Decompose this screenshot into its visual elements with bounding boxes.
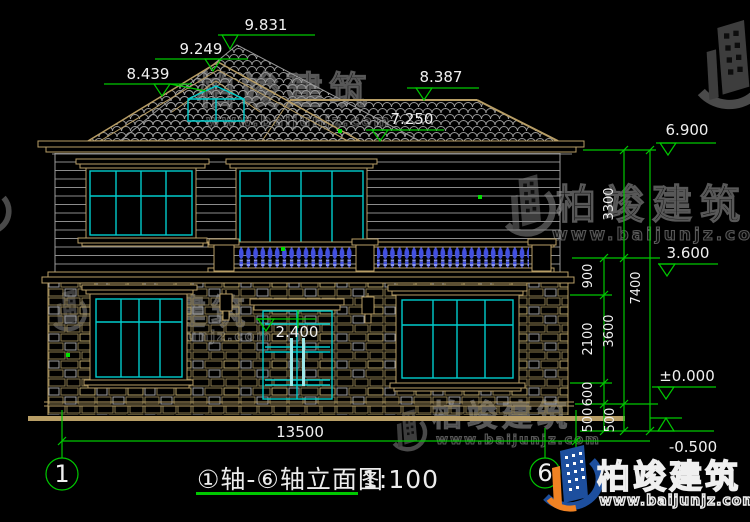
brand-name: 柏竣建筑 [597, 457, 741, 496]
drawing-scale: 1:100 [362, 465, 439, 494]
ground-line [28, 416, 625, 421]
dim-500: 500 [603, 408, 618, 433]
elevation-value: 9.249 [180, 40, 223, 58]
watermark-text: 柏竣建筑 [556, 182, 748, 228]
watermark-url: www.baijunjz.com [552, 225, 750, 245]
axis-number: 6 [537, 459, 552, 487]
balcony-railing [208, 239, 556, 273]
axis-number: 1 [54, 460, 69, 488]
elevation-value: ±0.000 [659, 367, 715, 385]
cad-elevation-sheet: 柏竣建筑 www.baijunjz.com 柏竣建筑 www.baijunjz.… [0, 0, 750, 522]
dim-3300: 3300 [602, 187, 617, 220]
window-2f-left [76, 159, 209, 246]
floor-belt-course [42, 272, 574, 283]
elevation-value: 9.831 [245, 16, 288, 34]
logo-building-blue [560, 445, 588, 503]
door-handle [290, 338, 293, 386]
eave-fascia [38, 141, 584, 154]
dim-600: 600 [581, 382, 596, 407]
window-2f-middle [226, 159, 377, 246]
dim-7400: 7400 [629, 271, 644, 304]
first-floor [44, 283, 574, 415]
window-1f-right [388, 285, 527, 391]
dim-3600: 3600 [602, 314, 617, 347]
elevation-value: 8.387 [420, 68, 463, 86]
elevation-value: -0.500 [669, 438, 717, 456]
title-underline [196, 492, 358, 495]
railing-post [209, 239, 239, 271]
elevation-value: 6.900 [666, 121, 709, 139]
dim-500: 500 [581, 408, 596, 433]
dim-2100: 2100 [581, 322, 596, 355]
dim-900: 900 [581, 264, 596, 289]
elevation-value: 2.400 [276, 323, 319, 341]
elevation-drawing: 柏竣建筑 www.baijunjz.com 柏竣建筑 www.baijunjz.… [0, 0, 750, 522]
drawing-title-block: ①轴-⑥轴立面图 1:100 [196, 465, 439, 495]
window-1f-left [82, 285, 197, 388]
drawing-title: ①轴-⑥轴立面图 [197, 465, 384, 494]
elevation-value: 3.600 [667, 244, 710, 262]
elevation-value: 8.439 [127, 65, 170, 83]
brand-url: www.baijunjz.com [599, 493, 750, 509]
dim-total-width: 13500 [276, 423, 324, 441]
railing-post [352, 239, 378, 271]
elevation-value: 7.250 [391, 110, 434, 128]
door-handle [302, 338, 305, 386]
